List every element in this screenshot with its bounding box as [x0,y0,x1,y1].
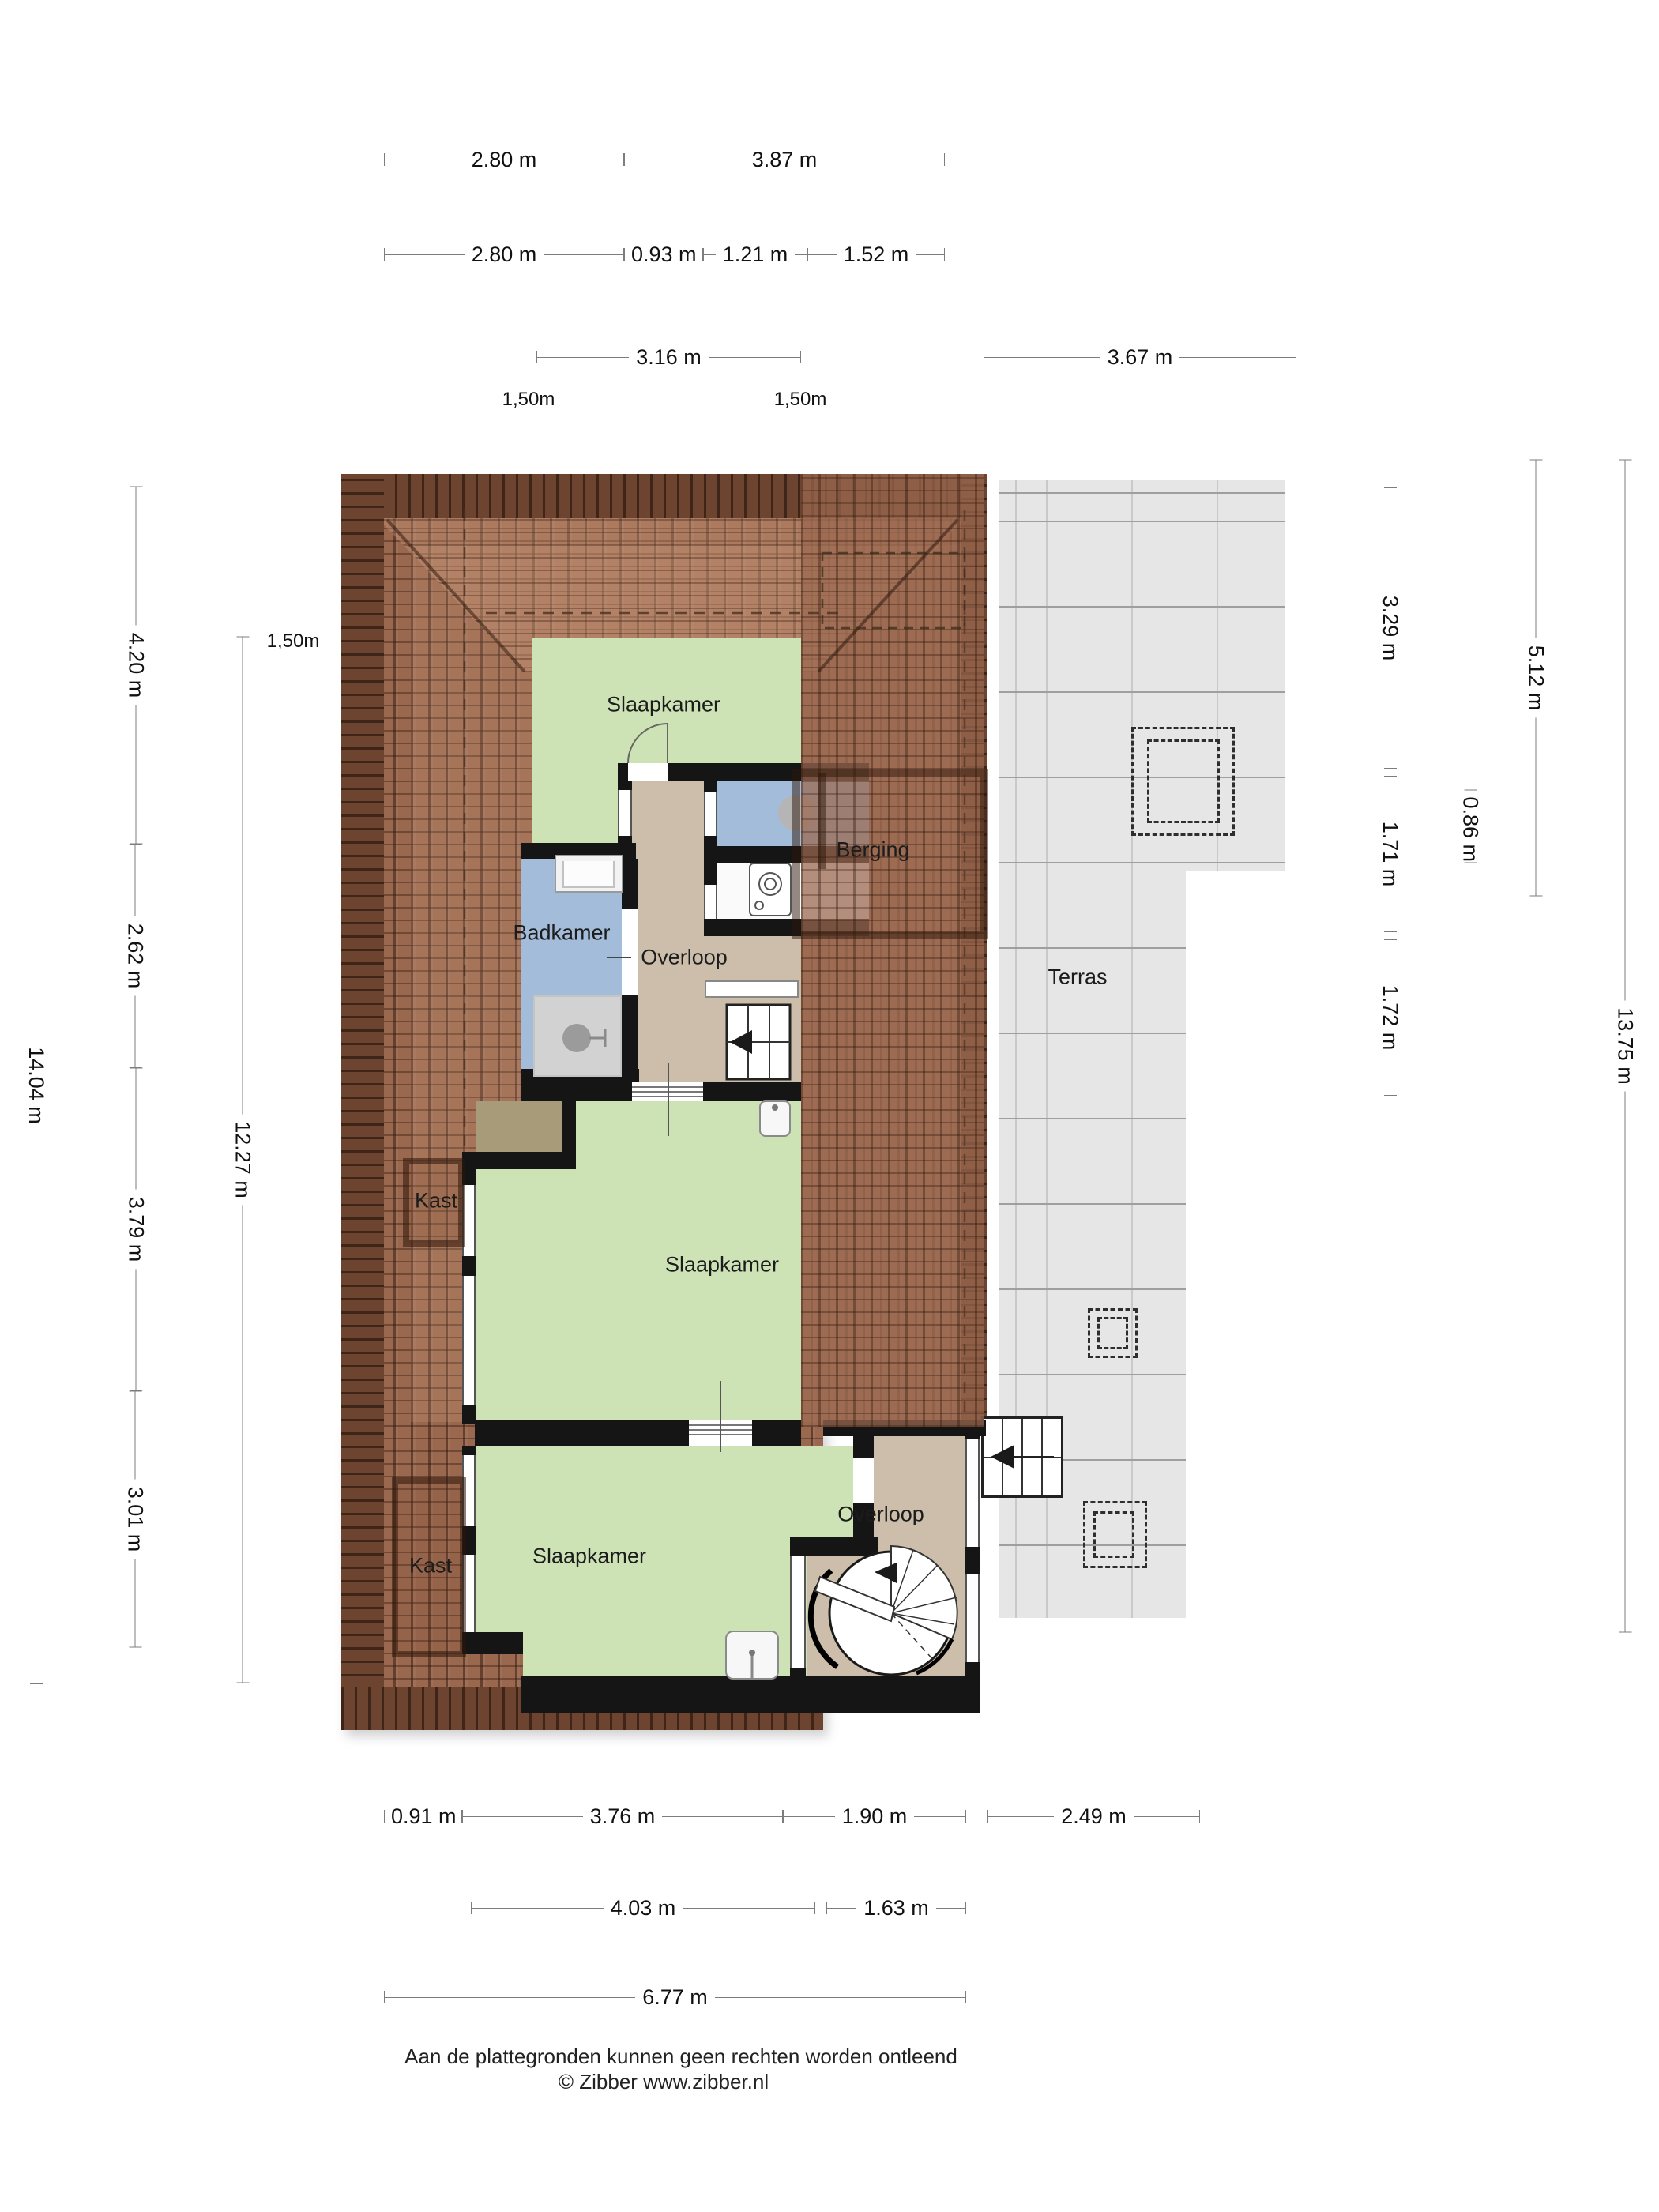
dim-left-b: 2.62 m [125,845,147,1068]
dim-right-small: 0.86 m [1460,790,1482,863]
terrace-stair [981,1416,1063,1498]
dim-top1-b: 3.87 m [624,149,945,171]
door-overloop-top [618,790,632,836]
door-badkamer [622,908,638,995]
window-slaapkamer-mid-1 [462,1185,476,1256]
wall [752,1420,801,1446]
wall [475,1420,689,1446]
label-terras: Terras [1048,965,1107,990]
wall [521,1676,980,1713]
copyright-text: © Zibber www.zibber.nl [0,2070,1493,2094]
wall [965,1547,980,1574]
dim-bottom1-a: 0.91 m [384,1805,462,1827]
shower-drain [562,1024,591,1052]
terrace-skylight-large-inner [1147,739,1220,823]
dim-right-total: 13.75 m [1615,460,1637,1633]
dim-bottom3: 6.77 m [384,1986,966,2008]
dim-left-inner: 12.27 m [232,637,254,1683]
dim-bottom2-a: 4.03 m [471,1897,815,1919]
dim-right-mid: 5.12 m [1525,460,1548,897]
wall [462,1632,523,1654]
washing-machine-knob [754,901,764,910]
label-slaapkamer-bottom: Slaapkamer [532,1544,646,1569]
clearance-label-top-right: 1,50m [774,389,827,411]
dim-bottom2-b: 1.63 m [826,1897,966,1919]
door-slaapkamer-bottom [853,1458,874,1503]
label-kast-lower: Kast [409,1554,452,1578]
clearance-label-top-left: 1,50m [502,389,555,411]
dim-bottom1-b: 3.76 m [462,1805,783,1827]
dim-top3-b: 3.67 m [984,346,1296,368]
dim-top3-a: 3.16 m [536,346,801,368]
dim-right-b: 1.71 m [1379,776,1401,932]
clearance-label-left: 1,50m [267,630,320,653]
dim-top2-c: 1.21 m [703,243,807,265]
dim-left-total: 14.04 m [25,487,47,1684]
terrace-skylight-small-2-inner [1093,1511,1134,1558]
dim-left-d: 3.01 m [125,1391,147,1648]
terrace-skylight-small-1-inner [1097,1317,1128,1349]
roof-overlay-right [801,474,984,1427]
wall [703,1082,801,1101]
washing-machine-door-inner [764,878,777,890]
sink-slaapkamer-mid [759,1100,791,1137]
room-corner-under-slope [476,1101,562,1152]
window-slaapkamer-bottom-1 [462,1455,476,1526]
bathtub-basin [562,861,615,888]
wall [965,1430,980,1439]
dim-left-c: 3.79 m [126,1068,148,1391]
dim-top1-a: 2.80 m [384,149,624,171]
dim-top2-a: 2.80 m [384,243,624,265]
label-slaapkamer-top: Slaapkamer [607,693,720,717]
window-slaapkamer-bottom-2 [462,1555,476,1632]
sliding-door-overloop-mid [632,1082,703,1101]
label-slaapkamer-mid: Slaapkamer [665,1253,779,1277]
window-toilet [704,792,717,836]
disclaimer-text: Aan de plattegronden kunnen geen rechten… [0,2045,1510,2069]
window-slaapkamer-mid-2 [462,1276,476,1405]
wall [521,1082,632,1101]
sliding-door-slaapkamer-bottom [689,1420,752,1446]
dim-right-c: 1.72 m [1379,939,1401,1096]
dim-right-a: 3.29 m [1379,487,1401,769]
label-kast-upper: Kast [415,1189,457,1213]
floorplan-page: Slaapkamer Berging Badkamer Overloop Sla… [0,0,1659,2212]
dim-top2-b: 0.93 m [624,243,703,265]
window-stairwell [790,1556,806,1668]
dim-left-a: 4.20 m [126,487,148,845]
wall [462,1152,576,1169]
dim-top2-d: 1.52 m [807,243,945,265]
label-overloop-bottom: Overloop [837,1503,924,1527]
window-washroom [704,885,717,919]
roof-ridge-left [341,474,384,1730]
dim-bottom1-d: 2.49 m [987,1805,1200,1827]
label-overloop-mid: Overloop [641,946,728,970]
dim-bottom1-c: 1.90 m [783,1805,966,1827]
wall [790,1537,878,1556]
sink-slaapkamer-bottom [725,1631,779,1680]
door-slaapkamer-top [628,763,668,781]
wall [965,1662,980,1676]
label-berging: Berging [836,838,909,863]
label-badkamer: Badkamer [513,921,610,946]
